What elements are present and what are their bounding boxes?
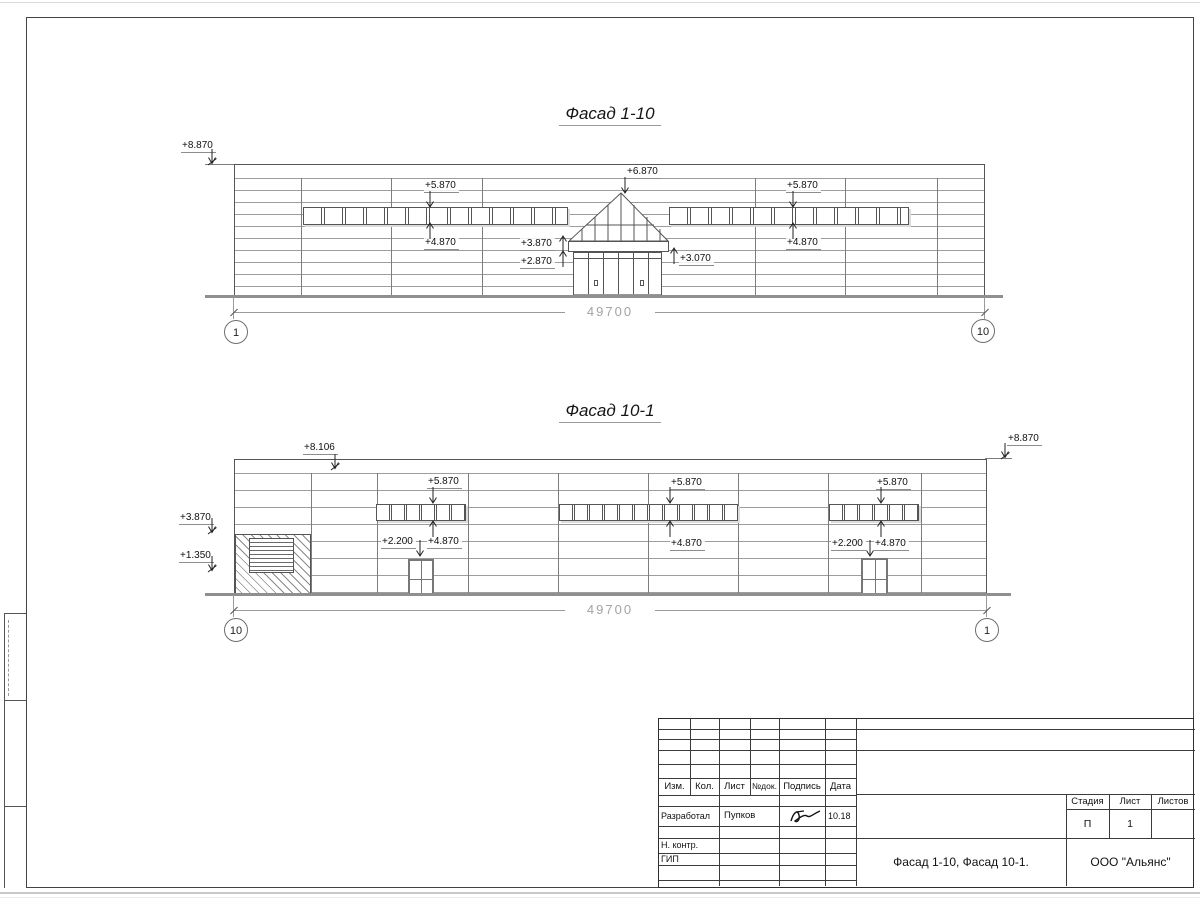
left-stamp-border — [4, 613, 5, 888]
facade2-dimension-value: 49700 — [565, 602, 655, 617]
facade2-ground-line — [205, 593, 1011, 596]
column-line — [377, 473, 378, 594]
elevation-label: +4.870 — [670, 538, 705, 549]
facade1-ground-line — [205, 295, 1003, 298]
column-line — [482, 178, 483, 296]
extension-line — [986, 595, 987, 617]
side-door-left — [408, 559, 434, 596]
column-line — [828, 473, 829, 594]
elevation-label: +8.870 — [1007, 433, 1042, 444]
facade1-dimension-value: 49700 — [565, 304, 655, 319]
tb-gip-label: ГИП — [661, 854, 679, 864]
column-line — [468, 473, 469, 594]
signature — [787, 808, 823, 825]
page-edge-bottom — [0, 892, 1200, 894]
extension-line — [233, 595, 234, 617]
column-line — [845, 178, 846, 296]
column-line — [391, 178, 392, 296]
left-stamp-divider — [4, 700, 26, 701]
side-door-right — [861, 558, 888, 596]
elevation-label: +3.070 — [679, 253, 714, 264]
window-strip-center — [559, 504, 738, 521]
tb-developed-date: 10.18 — [828, 811, 851, 821]
elevation-label: +1.350 — [179, 550, 214, 561]
door-mullion — [421, 561, 422, 594]
elevation-label: +3.870 — [520, 238, 555, 249]
left-stamp-vertical-text — [8, 620, 9, 696]
column-line — [738, 473, 739, 594]
column-line — [921, 473, 922, 594]
tb-sheet-label: Лист — [1109, 796, 1151, 807]
tb-col-kol: Кол. — [690, 781, 719, 792]
column-line — [558, 473, 559, 594]
elevation-label: +5.870 — [424, 180, 459, 191]
elevation-label: +2.200 — [831, 538, 866, 549]
tb-doc-title: Фасад 1-10, Фасад 10-1. — [856, 838, 1066, 886]
drawing-sheet: Фасад 1-10 49700 1 10 +8.870 — [0, 0, 1200, 900]
facade1-building — [234, 164, 985, 297]
tb-col-izm: Изм. — [659, 781, 690, 792]
title-block: Изм. Кол. Лист №док. Подпись Дата Разраб… — [658, 718, 1194, 888]
window-strip-left — [303, 207, 568, 225]
elevation-label: +5.870 — [876, 477, 911, 488]
axis-bubble-1: 1 — [224, 320, 248, 344]
tb-ncontr-label: Н. контр. — [661, 840, 698, 850]
elevation-label: +4.870 — [786, 237, 821, 248]
elevation-label: +6.870 — [626, 166, 661, 177]
elevation-label: +2.200 — [381, 536, 416, 547]
door-handle — [594, 280, 598, 286]
entrance-pediment — [569, 192, 669, 242]
column-line — [755, 178, 756, 296]
extension-line — [984, 297, 985, 319]
column-line — [937, 178, 938, 296]
elevation-label: +4.870 — [424, 237, 459, 248]
transom-line — [574, 258, 661, 259]
tb-stage-label: Стадия — [1066, 796, 1109, 807]
axis-bubble-10: 10 — [224, 618, 248, 642]
door-handle — [640, 280, 644, 286]
door-rail — [410, 579, 432, 580]
left-stamp-divider — [4, 613, 26, 614]
elevation-label: +3.870 — [179, 512, 214, 523]
entrance-doors — [573, 252, 662, 298]
elevation-label: +5.870 — [670, 477, 705, 488]
tb-sheets-label: Листов — [1151, 796, 1195, 807]
tb-developed-name: Пупков — [724, 810, 755, 821]
facade1-title: Фасад 1-10 — [530, 104, 690, 124]
tb-col-podpis: Подпись — [779, 781, 825, 792]
entrance-canopy — [568, 241, 669, 252]
elevation-label: +8.106 — [303, 442, 338, 453]
column-line — [648, 473, 649, 594]
tb-developed-label: Разработал — [661, 811, 710, 821]
tb-col-data: Дата — [825, 781, 856, 792]
tb-stage-value: П — [1066, 818, 1109, 830]
page-edge-bottom-2 — [0, 897, 1200, 898]
elevation-label: +2.870 — [520, 256, 555, 267]
elevation-label: +5.870 — [427, 476, 462, 487]
tb-col-ndoc: №док. — [750, 781, 779, 791]
axis-bubble-1: 1 — [975, 618, 999, 642]
facade2-building — [234, 459, 987, 595]
door-rail — [863, 579, 886, 580]
elevation-label: +4.870 — [427, 536, 462, 547]
tb-col-list: Лист — [719, 781, 750, 792]
tb-sheet-value: 1 — [1109, 818, 1151, 830]
elevation-label: +8.870 — [181, 140, 216, 151]
facade2-title: Фасад 10-1 — [530, 401, 690, 421]
window-strip-left — [376, 504, 466, 521]
column-line — [311, 473, 312, 594]
elevation-label: +5.870 — [786, 180, 821, 191]
door-mullion — [875, 560, 876, 594]
louver-grille — [249, 538, 294, 573]
axis-bubble-10: 10 — [971, 319, 995, 343]
tb-organization: ООО "Альянс" — [1066, 838, 1195, 886]
page-edge-top — [0, 2, 1200, 3]
window-strip-right — [829, 504, 919, 521]
elevation-label: +4.870 — [874, 538, 909, 549]
left-stamp-divider — [4, 806, 26, 807]
extension-line — [233, 297, 234, 319]
column-line — [301, 178, 302, 296]
